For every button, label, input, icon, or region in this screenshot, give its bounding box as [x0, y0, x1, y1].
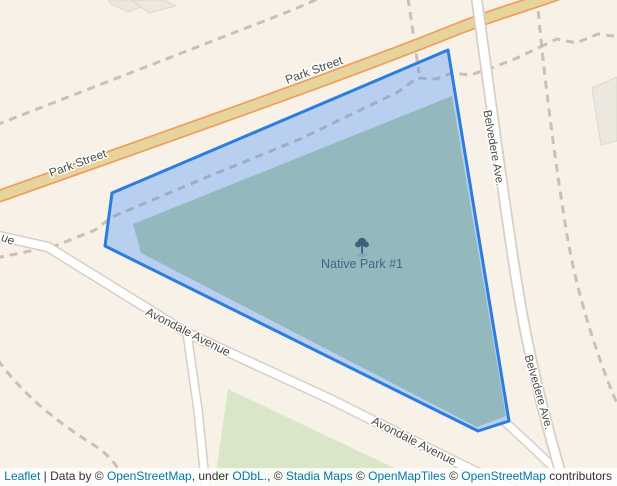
leaflet-map[interactable]: Park Street Park Street Avondale Avenue … [0, 0, 617, 486]
attribution-link-stadia-maps[interactable]: Stadia Maps [286, 469, 353, 483]
attribution-text: © [353, 469, 369, 483]
poi-label-native-park: Native Park #1 [321, 257, 403, 271]
attribution-bar: Leaflet | Data by © OpenStreetMap, under… [0, 468, 617, 486]
attribution-link-odbl[interactable]: ODbL. [232, 469, 267, 483]
attribution-link-openstreetmap[interactable]: OpenStreetMap [107, 469, 192, 483]
attribution-text: , © [267, 469, 286, 483]
attribution-text: , under [192, 469, 233, 483]
attribution-text: contributors [546, 469, 612, 483]
attribution-text: © [446, 469, 462, 483]
attribution-link-openstreetmap[interactable]: OpenStreetMap [461, 469, 546, 483]
attribution-link-openmaptiles[interactable]: OpenMapTiles [368, 469, 446, 483]
map-canvas[interactable]: Park Street Park Street Avondale Avenue … [0, 0, 617, 486]
attribution-link-leaflet[interactable]: Leaflet [4, 469, 40, 483]
tree-canopy [363, 242, 369, 248]
tree-canopy [355, 242, 361, 248]
attribution-text: | Data by © [40, 469, 107, 483]
